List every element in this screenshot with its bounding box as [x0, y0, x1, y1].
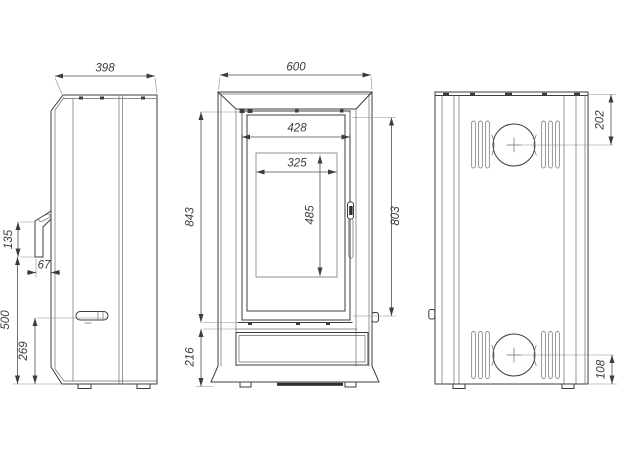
- dim-front-firebox-width: 325: [287, 158, 307, 170]
- door-glass: [247, 115, 345, 311]
- front-view: 600 428 325 485 843 216 803: [185, 62, 403, 388]
- dim-side-bracket-height: 135: [3, 229, 15, 249]
- door-hinge-tab: [248, 109, 253, 113]
- base-shadow: [277, 383, 343, 386]
- side-body-outline: [51, 95, 157, 384]
- dim-side-bracket-depth: 67: [38, 260, 51, 272]
- foot: [240, 382, 251, 387]
- dim-back-inlet-offset: 108: [596, 359, 608, 379]
- foot: [453, 384, 465, 389]
- lip-tick: [296, 323, 300, 326]
- top-band-tick: [443, 93, 449, 96]
- top-band-tick: [574, 93, 580, 96]
- dim-ext-depth: [55, 78, 157, 94]
- stove-dimension-drawing: 398 135 67 500 269: [0, 0, 624, 460]
- dim-front-base-height: 216: [185, 347, 197, 368]
- top-band-tick: [542, 93, 547, 96]
- dim-side-depth: 398: [95, 63, 115, 75]
- dim-front-width: 600: [286, 62, 306, 74]
- frame-miter: [218, 92, 372, 109]
- dim-front-firebox-height: 485: [305, 205, 317, 225]
- lip-tick: [248, 323, 252, 326]
- side-front-inner-edge: [55, 98, 64, 382]
- ash-panel: [236, 333, 368, 366]
- top-seam-tick: [141, 97, 145, 100]
- frame-inner-sides: [236, 109, 356, 366]
- dim-side-intake-height: 500: [0, 310, 12, 330]
- door-latch-pin: [349, 206, 352, 215]
- dim-ext-upper-height: [201, 112, 240, 323]
- foot: [562, 384, 574, 389]
- foot: [78, 384, 91, 389]
- technical-drawing-canvas: 398 135 67 500 269: [0, 0, 624, 460]
- front-shell-inner-lines: [221, 94, 369, 366]
- foot: [345, 382, 356, 387]
- door-latch-bar: [349, 219, 353, 258]
- back-body-outline: [435, 92, 588, 384]
- dim-ext-base-height: [196, 329, 234, 387]
- door-top-tick: [295, 110, 299, 113]
- top-band-tick: [470, 93, 475, 96]
- back-view: 202 108: [429, 92, 617, 389]
- foot: [137, 384, 150, 389]
- vent-slots-top: [472, 121, 560, 168]
- side-view: 398 135 67 500 269: [0, 63, 157, 389]
- top-seam-tick: [100, 97, 104, 100]
- top-seam-tick: [79, 97, 83, 100]
- door-top-tick: [340, 110, 344, 113]
- door-hinge-tab: [240, 109, 245, 113]
- dim-front-glass-width: 428: [287, 123, 307, 135]
- ash-panel-inner: [239, 336, 365, 363]
- dim-ext-bracket-height: [20, 222, 34, 257]
- back-panel-lines: [442, 96, 585, 385]
- dim-front-upper-height: 843: [185, 207, 197, 227]
- door-outline: [242, 111, 350, 320]
- dim-back-flue-offset: 202: [595, 110, 607, 131]
- dim-front-door-height: 803: [390, 206, 402, 226]
- dim-ext-width: [219, 77, 373, 90]
- door-handle-front: [372, 313, 379, 323]
- door-handle-back: [429, 310, 435, 320]
- top-band-tick: [505, 93, 512, 96]
- dim-side-handle-height: 269: [18, 341, 30, 362]
- lip-tick: [326, 323, 330, 326]
